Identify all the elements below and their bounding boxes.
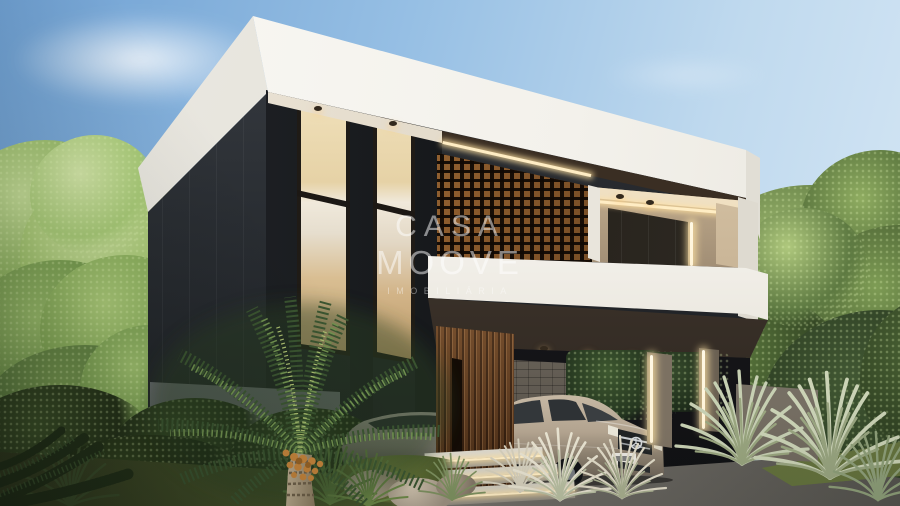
date-palm (140, 275, 460, 506)
corner-fronds (0, 412, 180, 506)
architectural-render: CASA MOOVE IMOBILIÁRIA (0, 0, 900, 506)
